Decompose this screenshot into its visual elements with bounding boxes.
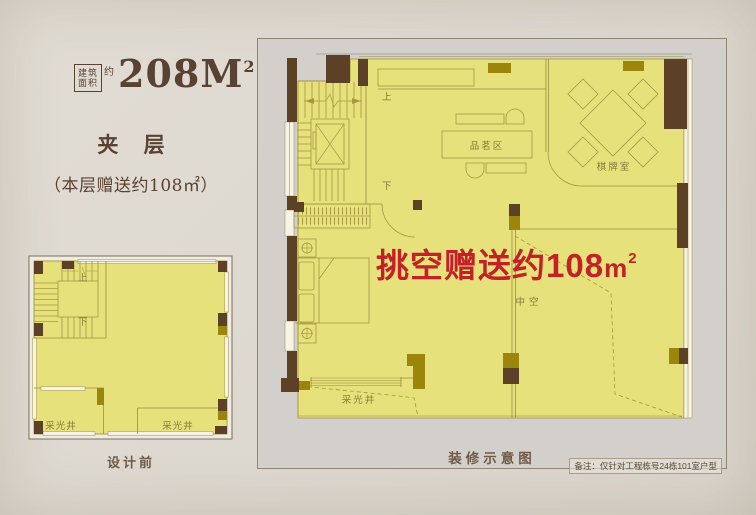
area-label-line2: 面积 (78, 78, 98, 88)
stair-down-label: 下 (382, 181, 392, 192)
area-exponent: 2 (243, 57, 254, 76)
area-badge: 建筑 面积 约 208M 2 (74, 55, 255, 93)
void-bonus-unit: m (604, 253, 628, 283)
void-bonus-exponent: 2 (628, 250, 637, 267)
lightwell-left-label: 采光井 (45, 420, 77, 432)
after-plan-figure: 上 下 品茗区 棋牌室 中空 采光井 挑空赠送约108m2 装修示意图 备注：仅… (257, 38, 727, 469)
stair-up-label: 上 (382, 92, 392, 103)
void-bonus-text: 挑空赠送约108 (376, 247, 604, 284)
area-label-line1: 建筑 (78, 68, 98, 78)
area-value: 208M (118, 55, 243, 93)
lightwell-label: 采光井 (342, 394, 377, 406)
area-label-box: 建筑 面积 (74, 64, 102, 92)
before-plan-caption: 设计前 (0, 452, 262, 471)
area-approx: 约 (104, 63, 114, 78)
void-bonus-banner: 挑空赠送约108m2 (376, 249, 638, 282)
floor-title: 夹 层 (0, 129, 262, 159)
floorplan-sheet: 建筑 面积 约 208M 2 夹 层 （本层赠送约108㎡） (0, 0, 756, 515)
before-plan-figure: 上 下 采光井 采光井 (28, 255, 233, 440)
footnote: 备注：仅针对工程栋号24栋101室户型 (569, 458, 722, 474)
chess-room-label: 棋牌室 (597, 161, 632, 173)
stair-up-label: 上 (78, 273, 88, 284)
before-plan-svg: 上 下 采光井 采光井 (28, 255, 233, 440)
floor-area (298, 59, 684, 418)
stair-down-label: 下 (78, 317, 88, 328)
floor-bonus-note: （本层赠送约108㎡） (0, 171, 262, 196)
tea-area-label: 品茗区 (470, 141, 505, 152)
void-label: 中空 (515, 296, 542, 308)
lightwell-right-label: 采光井 (162, 420, 194, 432)
